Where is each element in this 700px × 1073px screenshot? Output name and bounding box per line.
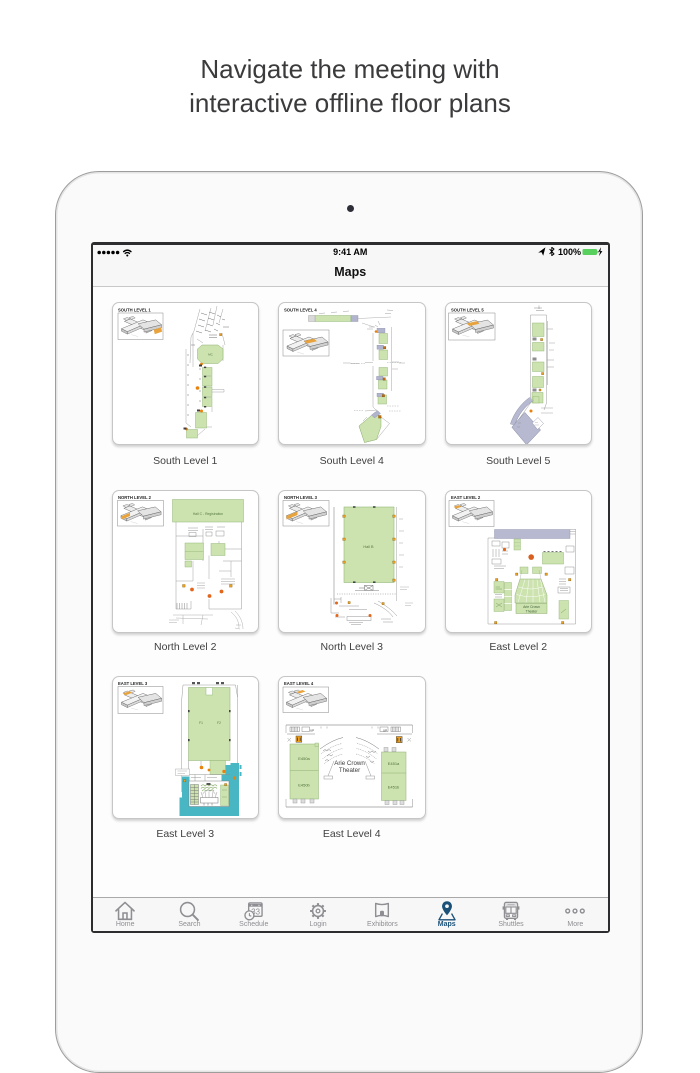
svg-text:UP: UP	[383, 728, 387, 732]
svg-text:EAST LEVEL 2: EAST LEVEL 2	[451, 495, 481, 500]
svg-text:MC: MC	[208, 353, 213, 357]
svg-text:100%: 100%	[558, 247, 581, 257]
svg-text:Hall C - Registration: Hall C - Registration	[192, 512, 222, 516]
svg-text:NORTH LEVEL 2: NORTH LEVEL 2	[118, 495, 152, 500]
svg-text:Hall B: Hall B	[363, 545, 374, 549]
svg-text:F1: F1	[199, 721, 203, 725]
svg-text:E451a: E451a	[388, 761, 400, 766]
svg-text:UP: UP	[310, 728, 314, 732]
svg-text:Arie Crown: Arie Crown	[334, 760, 365, 767]
svg-text:SOUTH LEVEL 1: SOUTH LEVEL 1	[118, 308, 151, 313]
svg-text:E450a: E450a	[298, 756, 310, 761]
svg-text:E451b: E451b	[388, 784, 400, 789]
svg-text:F2: F2	[217, 721, 221, 725]
svg-text:EAST LEVEL 4: EAST LEVEL 4	[284, 681, 314, 686]
svg-text:NORTH LEVEL 3: NORTH LEVEL 3	[284, 495, 318, 500]
svg-text:E450b: E450b	[298, 782, 310, 787]
svg-text:SOUTH LEVEL 5: SOUTH LEVEL 5	[451, 308, 484, 313]
svg-text:EAST LEVEL 3: EAST LEVEL 3	[118, 681, 148, 686]
svg-text:SOUTH LEVEL 4: SOUTH LEVEL 4	[284, 308, 317, 313]
svg-text:Theater: Theater	[339, 767, 360, 774]
svg-text:Theater: Theater	[525, 609, 538, 613]
